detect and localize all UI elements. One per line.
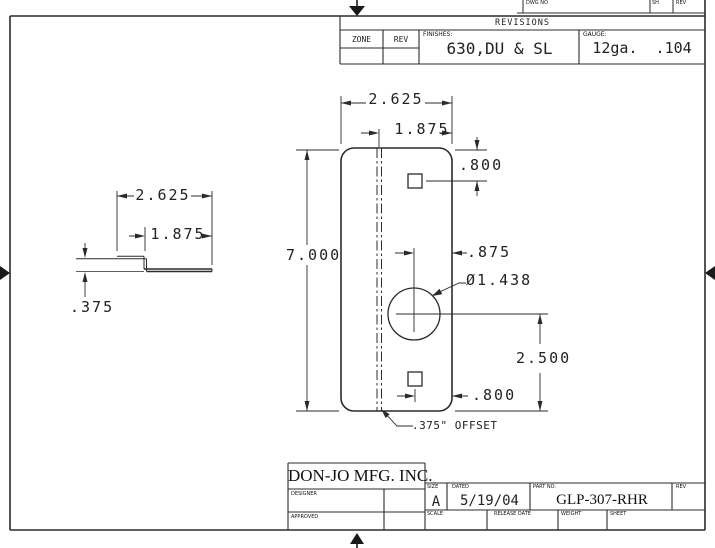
gauge-value: 12ga. .104 — [581, 39, 703, 57]
gauge-label: GAUGE: — [583, 32, 607, 38]
square-holes — [408, 174, 422, 386]
drawing-sheet: DWG NO SH REV REVISIONS ZONE REV FINISHE… — [0, 0, 715, 548]
part-no-value: GLP-307-RHR — [532, 492, 672, 509]
approved-label: APPROVED — [291, 514, 318, 520]
side-dimension-lines — [85, 191, 212, 297]
side-view-profile — [76, 256, 212, 271]
rev-label-small: REV — [676, 0, 686, 6]
dim-center-to-edge: .875 — [467, 245, 509, 259]
dim-front-height: 7.000 — [284, 248, 336, 262]
dim-bottom-hole: .800 — [472, 388, 516, 402]
zone-header: ZONE — [340, 35, 383, 44]
offset-note: .375" OFFSET — [412, 419, 490, 433]
dim-center-to-bottom: 2.500 — [514, 351, 566, 365]
scale-label: SCALE — [427, 511, 443, 517]
rev-header: REV — [383, 35, 419, 44]
sheet-label: SHEET — [610, 511, 626, 517]
offset-bend-lines — [377, 148, 382, 411]
dim-side-flat: 1.875 — [150, 227, 206, 241]
dwg-no-label: DWG NO — [526, 0, 548, 6]
dim-side-offset: .375 — [70, 300, 110, 314]
designer-label: DESIGNER — [291, 491, 317, 497]
dim-front-width: 2.625 — [368, 92, 424, 106]
dim-top-hole: .800 — [459, 158, 503, 172]
finishes-label: FINISHES: — [423, 32, 452, 38]
date-value: 5/19/04 — [449, 493, 530, 509]
dim-side-width: 2.625 — [134, 188, 192, 202]
sheet-label-small: SH — [652, 0, 659, 6]
front-view-plate — [341, 148, 452, 411]
size-label: SIZE — [427, 484, 438, 490]
dim-hole-diameter: Ø1.438 — [466, 273, 558, 287]
size-value: A — [425, 494, 447, 510]
sheet-border — [10, 0, 705, 530]
company-name: DON-JO MFG. INC. — [288, 466, 425, 486]
finishes-value: 630,DU & SL — [420, 39, 579, 58]
revisions-title: REVISIONS — [340, 18, 705, 28]
date-label: DATED — [452, 484, 469, 490]
part-no-label: PART NO. — [533, 484, 556, 490]
weight-label: WEIGHT — [561, 511, 581, 517]
rev-label: REV — [676, 484, 686, 490]
release-date-label: RELEASE DATE — [494, 511, 531, 517]
dim-front-flat: 1.875 — [394, 122, 450, 136]
